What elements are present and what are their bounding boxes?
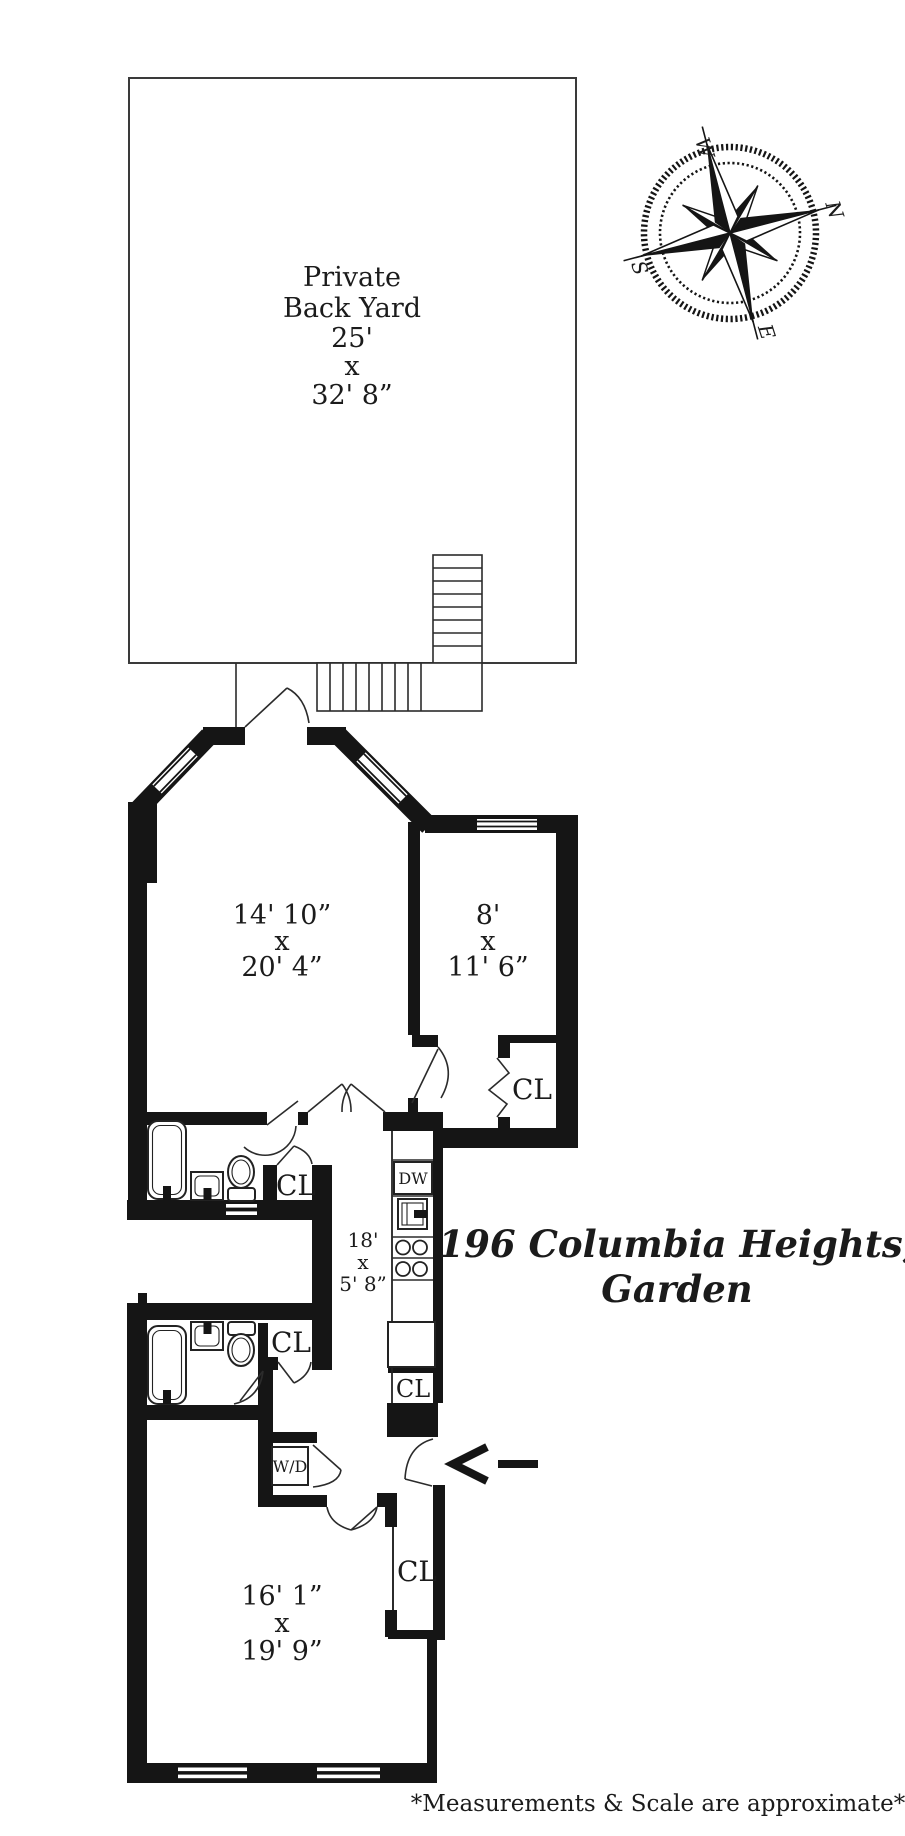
washer-dryer: W/D (272, 1447, 308, 1485)
dishwasher-label: DW (398, 1169, 428, 1188)
closet-label-bedroom2: CL (512, 1073, 552, 1106)
kitchen: DW (388, 1131, 435, 1403)
bedroom2-closet-bifold-door (489, 1058, 509, 1117)
title-line2: Garden (601, 1267, 752, 1311)
disclaimer-text: *Measurements & Scale are approximate* (411, 1791, 905, 1817)
compass-west-label: W (690, 134, 720, 162)
closet-label-bath1: CL (276, 1169, 316, 1202)
svg-text:19' 9”: 19' 9” (241, 1636, 322, 1667)
refrigerator-icon (388, 1322, 435, 1367)
yard-label-line1: Private (303, 262, 401, 293)
svg-text:18': 18' (348, 1228, 379, 1252)
svg-text:5' 8”: 5' 8” (339, 1272, 387, 1296)
bathroom2-closet-door (278, 1362, 311, 1383)
bay-window-left (154, 749, 196, 792)
yard-dim-depth: 32' 8” (311, 380, 392, 411)
living-room-double-doors (327, 1507, 377, 1530)
bay-window-right (358, 754, 406, 802)
compass-long-points (618, 121, 842, 345)
plan-title: 196 Columbia Heights, Garden (438, 1222, 905, 1311)
bathroom1-fixtures (148, 1121, 255, 1201)
compass-rose: W N S E (596, 99, 864, 367)
svg-text:x: x (274, 1608, 289, 1639)
toilet-icon (228, 1322, 255, 1366)
yard-dim-x: x (344, 351, 359, 382)
svg-text:20' 4”: 20' 4” (241, 952, 322, 983)
bathroom1-door (244, 1101, 298, 1155)
washer-dryer-door (313, 1445, 341, 1487)
closet-label-living: CL (397, 1555, 437, 1588)
bathroom1-closet-door (277, 1146, 312, 1165)
toilet-icon (228, 1156, 255, 1201)
closet-label-bath2: CL (271, 1326, 311, 1359)
svg-text:x: x (357, 1250, 369, 1274)
floor-plan-page: Private Back Yard 25' x 32' 8” (0, 0, 905, 1836)
bedroom2-label: 8' x 11' 6” (447, 900, 528, 983)
master-bedroom-label: 14' 10” x 20' 4” (233, 900, 332, 983)
hall-kitchen-label: 18' x 5' 8” (339, 1228, 387, 1296)
washer-dryer-label: W/D (273, 1457, 308, 1476)
compass-north-label: N (820, 197, 849, 223)
closet-label-pantry: CL (396, 1375, 430, 1403)
bathroom2-fixtures (148, 1322, 255, 1404)
living-room-label: 16' 1” x 19' 9” (241, 1581, 322, 1667)
back-yard: Private Back Yard 25' x 32' 8” (129, 78, 576, 663)
entry-door (405, 1439, 433, 1486)
yard-entry-door (245, 688, 309, 727)
master-double-doors (308, 1084, 385, 1112)
title-line1: 196 Columbia Heights, (438, 1222, 905, 1266)
svg-text:11' 6”: 11' 6” (447, 952, 528, 983)
bedroom2-window (477, 819, 537, 830)
yard-dim-width: 25' (331, 323, 373, 354)
bedroom2-door (412, 1047, 448, 1103)
oven-icon (398, 1199, 427, 1229)
floor-plan-drawing: Private Back Yard 25' x 32' 8” (0, 0, 905, 1836)
compass-east-label: E (753, 320, 781, 343)
entry-arrow (453, 1447, 538, 1481)
compass-south-label: S (626, 258, 653, 278)
yard-label-line2: Back Yard (283, 293, 421, 324)
